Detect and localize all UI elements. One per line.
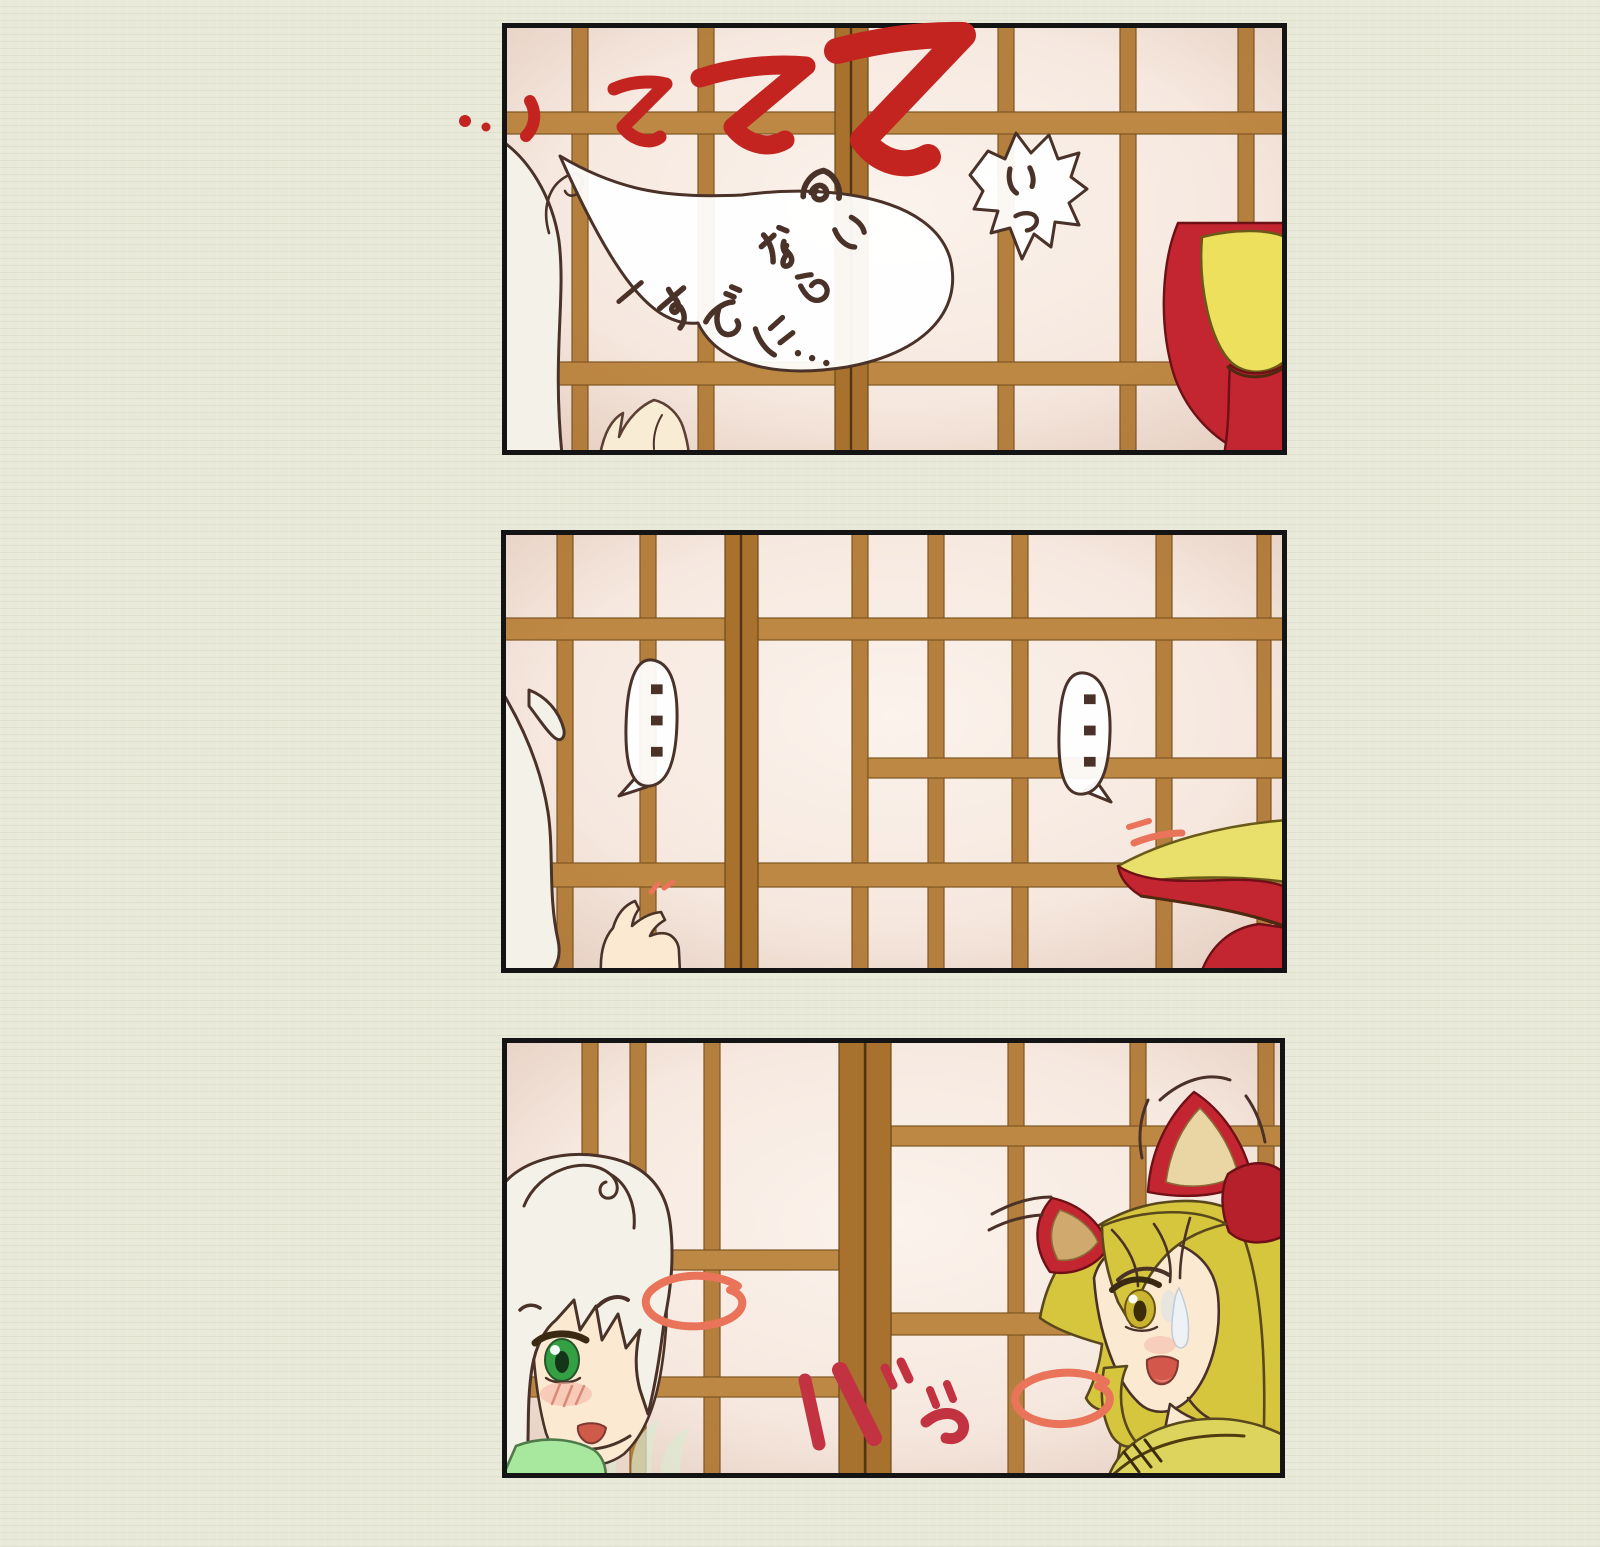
panel-3: バッ <box>502 1038 1285 1478</box>
ellipsis-text: … <box>1061 684 1170 783</box>
panel-2-art: … … <box>501 530 1287 973</box>
panel-2: … … <box>501 530 1287 973</box>
panel-3-art <box>502 1038 1285 1478</box>
blush <box>1144 1336 1176 1354</box>
panel-1-art <box>502 23 1287 455</box>
hood-red-lower <box>1224 365 1285 455</box>
panel-1: 匂いなら すでに… いっ ZZZ <box>502 23 1287 455</box>
comic-page: 匂いなら すでに… いっ ZZZ <box>0 0 1600 1547</box>
ellipsis-text: … <box>628 674 737 773</box>
red-bow <box>1222 1163 1289 1242</box>
